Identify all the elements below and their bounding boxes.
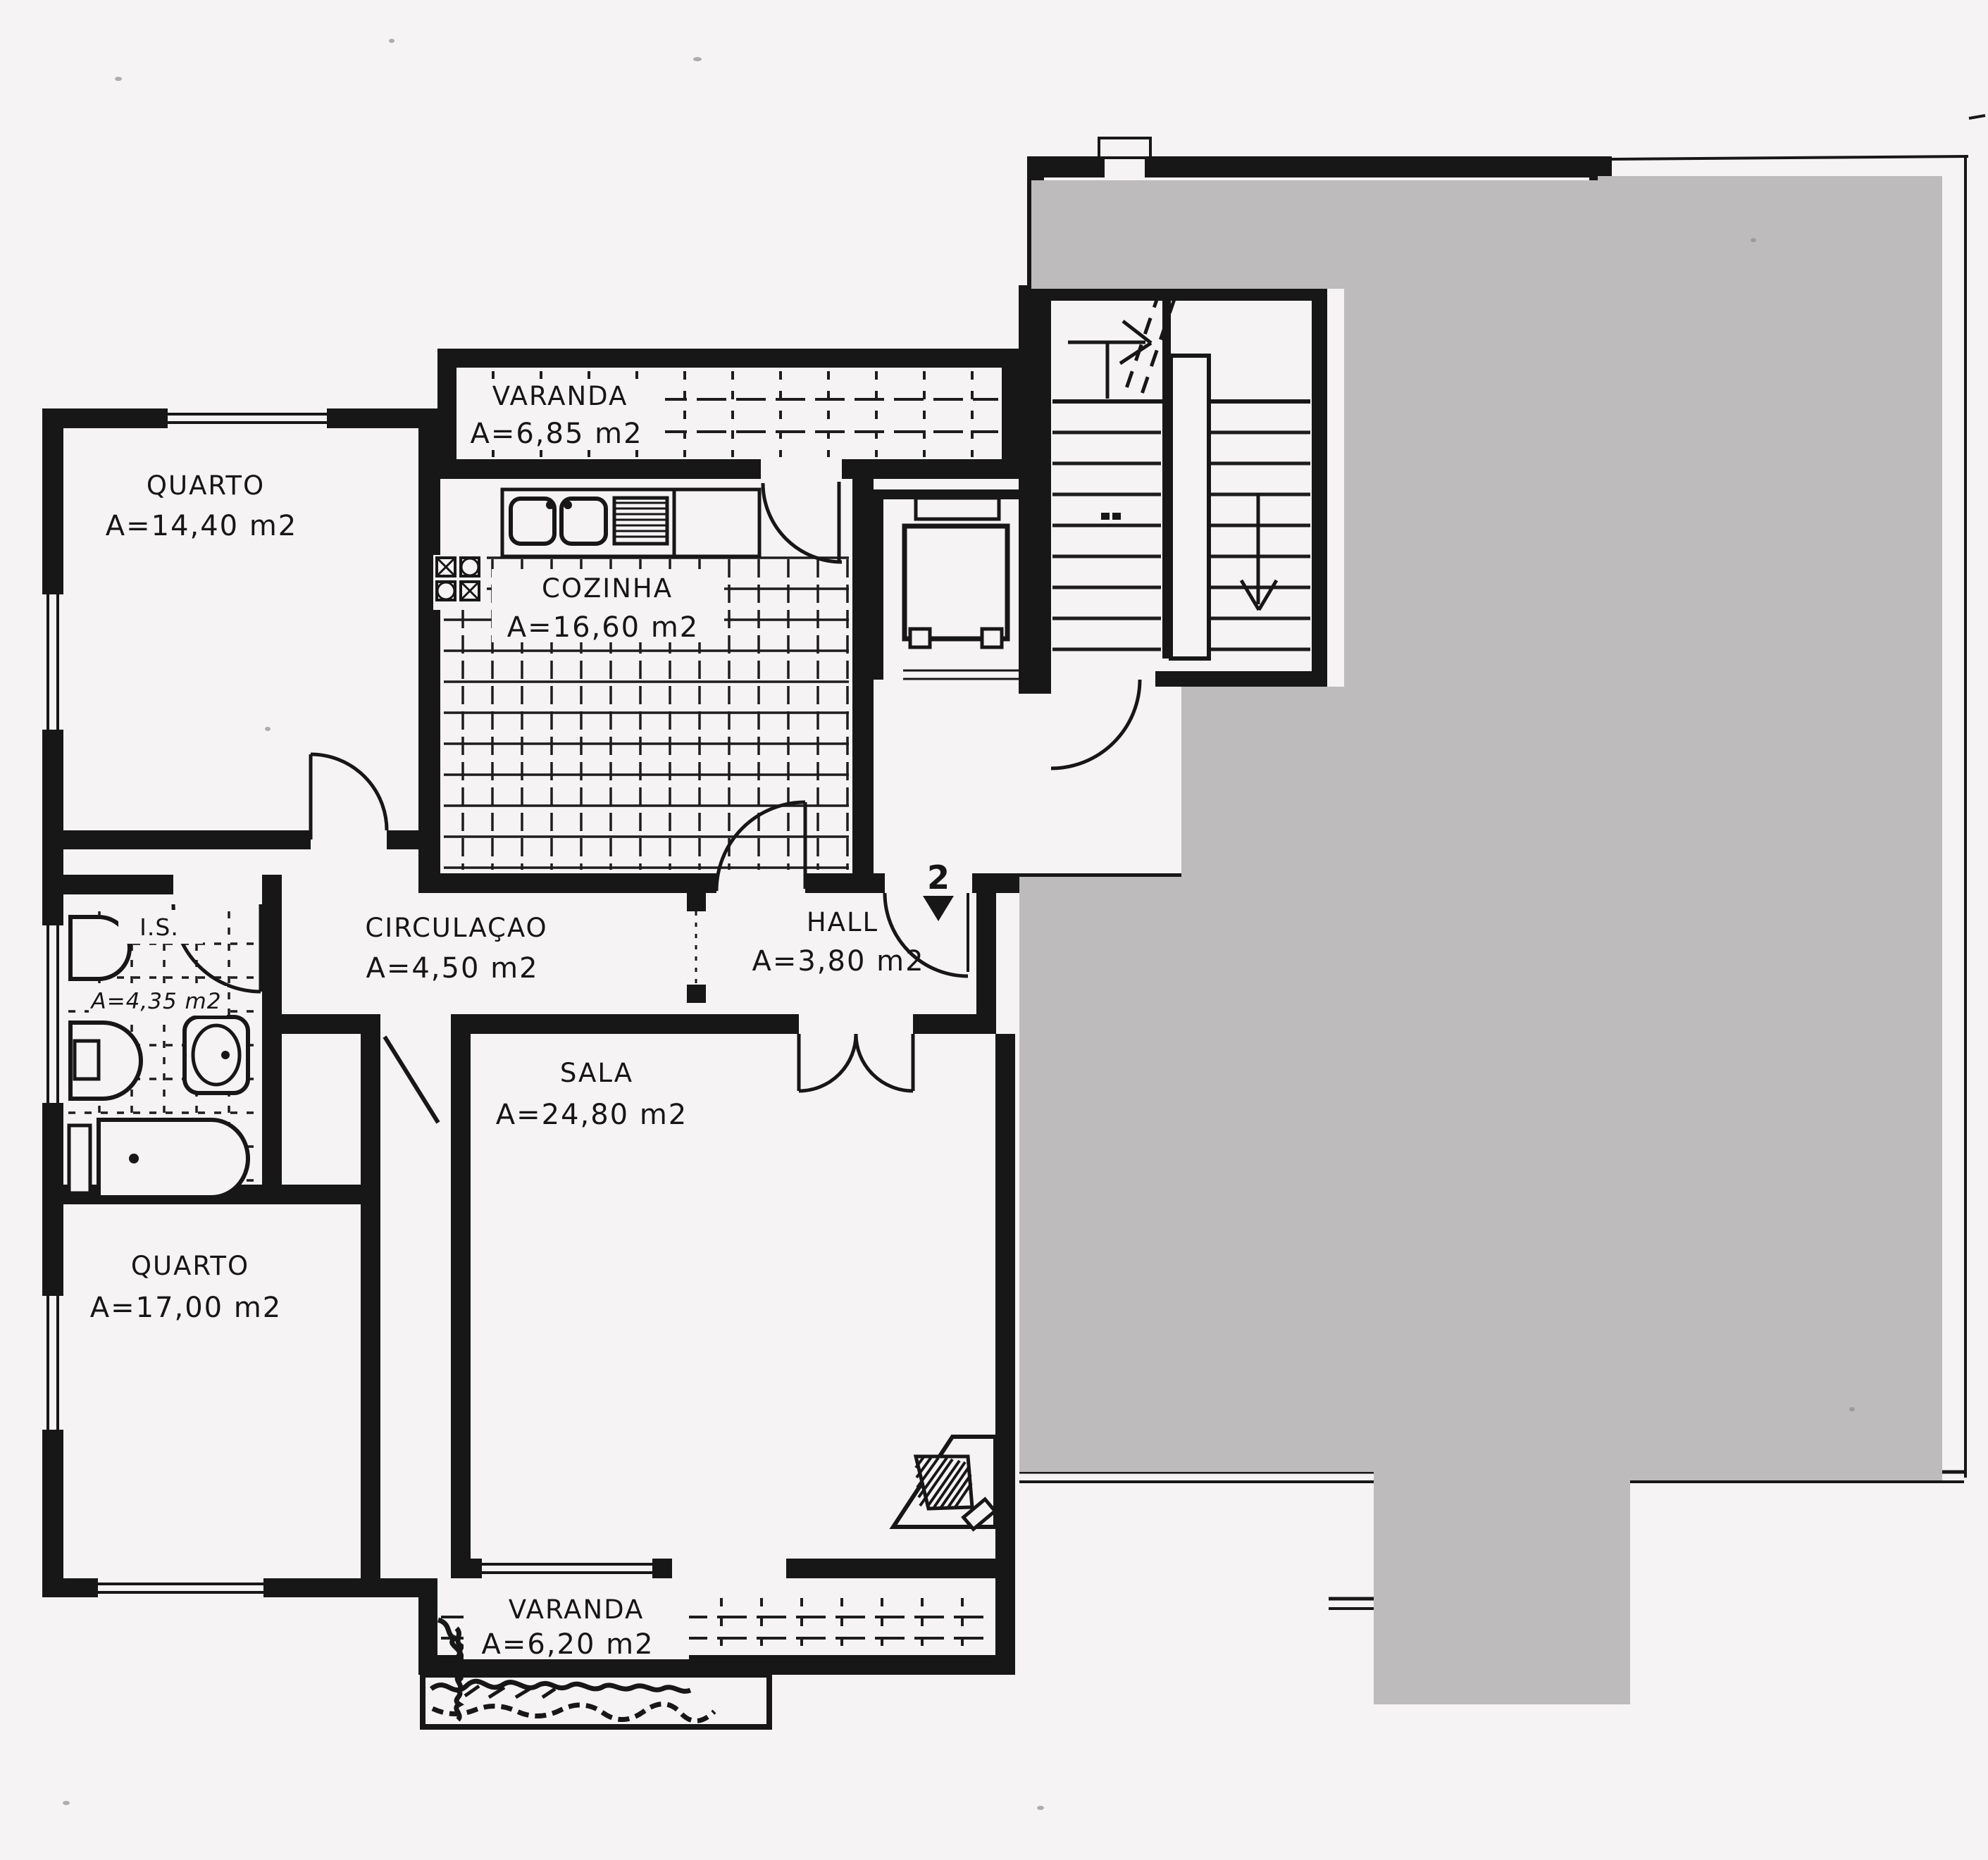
area-circulacao: A=4,50 m2	[366, 952, 538, 985]
label-sala: SALA	[560, 1058, 633, 1088]
area-quarto-2: A=17,00 m2	[90, 1292, 282, 1324]
elevator-car	[905, 526, 1007, 639]
area-is: A=4,35 m2	[90, 989, 222, 1014]
label-quarto-1: QUARTO	[147, 470, 265, 501]
cooktop-burners	[433, 555, 487, 610]
step-tick	[1112, 513, 1121, 520]
label-circulacao: CIRCULAÇAO	[365, 913, 547, 943]
window-sala-bottom	[476, 1559, 658, 1578]
label-hall: HALL	[807, 907, 878, 937]
area-cozinha: A=16,60 m2	[507, 611, 700, 644]
area-varanda-bottom: A=6,20 m2	[481, 1628, 654, 1661]
label-is: I.S.	[139, 913, 179, 941]
step-tick	[1101, 513, 1110, 520]
window-quarto1-top	[162, 408, 333, 428]
floor-plan-page: 2	[0, 0, 1988, 1860]
window-quarto2-bottom	[92, 1578, 269, 1597]
area-varanda-top: A=6,85 m2	[470, 418, 642, 450]
label-varanda-bottom: VARANDA	[509, 1594, 645, 1625]
window-quarto2-left	[42, 1290, 63, 1435]
floor-plan-drawing: 2	[0, 0, 1988, 1860]
label-varanda-top: VARANDA	[492, 381, 628, 411]
area-quarto-1: A=14,40 m2	[106, 510, 298, 542]
entry-number: 2	[927, 859, 950, 897]
area-hall: A=3,80 m2	[752, 945, 924, 978]
area-sala: A=24,80 m2	[496, 1099, 688, 1131]
bathtub	[99, 1120, 248, 1197]
window-is-left	[42, 920, 63, 1109]
label-cozinha: COZINHA	[542, 573, 673, 604]
window-quarto1-left	[42, 589, 63, 735]
label-quarto-2: QUARTO	[131, 1251, 249, 1281]
drainboard-hatch	[614, 498, 667, 544]
